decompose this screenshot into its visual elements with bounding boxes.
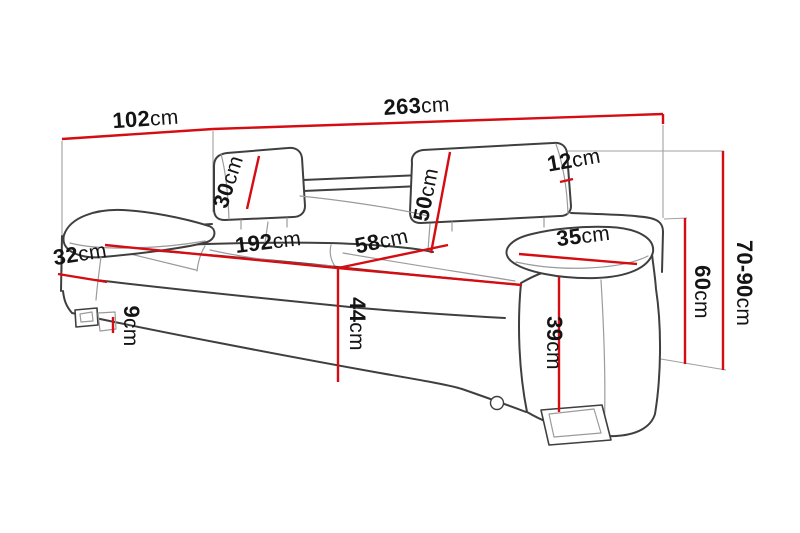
- seat-seam-right: [330, 245, 336, 268]
- sofa-drawing: [61, 143, 663, 445]
- dim-label-seat-height: 44cm: [345, 297, 370, 351]
- sofa-dimension-diagram: 102cm 263cm 12cm 30cm 50cm 35cm 32cm 192…: [0, 0, 800, 533]
- bar-top-edge: [303, 175, 421, 180]
- left-leg-bracket: [75, 308, 98, 327]
- backrest-seam-right: [428, 224, 430, 250]
- dim-line-armrest-top-depth: [58, 274, 107, 282]
- cushion-bottom-seam: [96, 280, 505, 318]
- left-leg: [75, 308, 116, 331]
- dim-label-side-height: 60cm: [690, 265, 715, 319]
- bar-bottom-edge: [303, 186, 421, 191]
- backrest-bar: [303, 175, 421, 191]
- dim-label-total-height: 70-90cm: [732, 240, 757, 326]
- dim-label-armrest-height: 39cm: [542, 316, 567, 370]
- extension-back-top-right: [664, 218, 687, 219]
- dim-label-seat-width: 192cm: [234, 225, 303, 258]
- front-round-foot: [491, 397, 504, 410]
- dim-label-total-depth: 102cm: [112, 104, 180, 134]
- dim-label-leg-height: 9cm: [119, 305, 144, 346]
- seat-seam-left: [197, 246, 205, 271]
- dim-line-seat-front-edge: [338, 268, 522, 285]
- dim-label-total-width: 263cm: [383, 91, 451, 120]
- diagram-canvas: 102cm 263cm 12cm 30cm 50cm 35cm 32cm 192…: [0, 0, 800, 533]
- dim-label-seat-depth: 58cm: [353, 223, 411, 259]
